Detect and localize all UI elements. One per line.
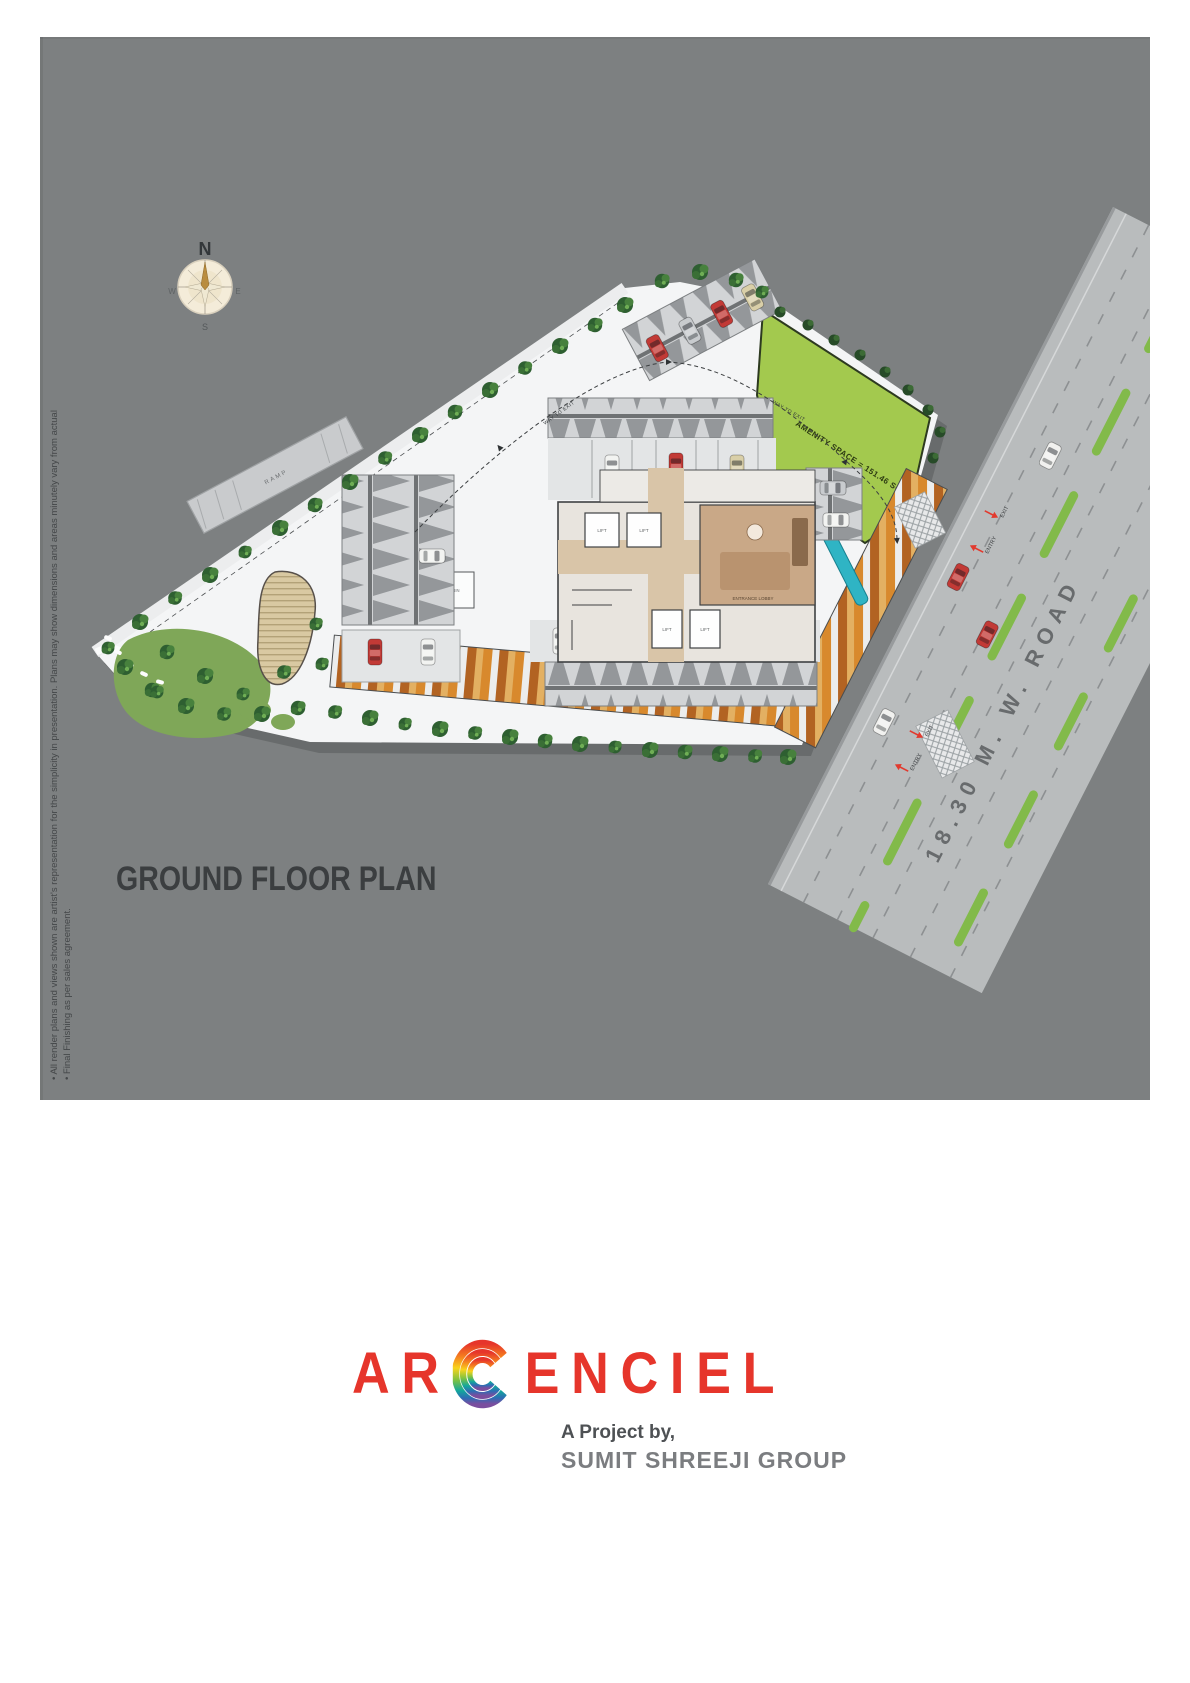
project-by-text: A Project by, — [561, 1422, 847, 1444]
lift-label: LIFT — [700, 627, 710, 632]
logo-wordmark: AR ENCIEL — [352, 1322, 856, 1426]
site-plan-drawing: 18.30 M. W. ROAD — [40, 37, 1150, 1100]
logo-text-enciel: ENCIEL — [525, 1322, 787, 1426]
developer-name: SUMIT SHREEJI GROUP — [561, 1447, 847, 1474]
compass-e: E — [235, 287, 240, 296]
rainbow-c-icon — [453, 1322, 518, 1426]
compass-n: N — [199, 239, 212, 259]
byline: A Project by, SUMIT SHREEJI GROUP — [561, 1422, 847, 1474]
disclaimer-line-1: • All render plans and views shown are a… — [48, 338, 61, 1080]
lift-label: LIFT — [597, 528, 607, 533]
page-title: GROUND FLOOR PLAN — [116, 860, 436, 899]
entrance-lobby-label: ENTRANCE LOBBY — [732, 596, 773, 601]
entrance-lobby: ENTRANCE LOBBY — [700, 505, 815, 605]
brand-block: AR ENCIEL A Project by, SUMIT SHREEJI G — [352, 1322, 912, 1492]
site: AMENITY SPACE = 151.46 SQ.MT. — [95, 259, 947, 756]
disclaimer-notes: • All render plans and views shown are a… — [48, 338, 74, 1080]
compass-w: W — [168, 287, 176, 296]
disclaimer-line-2: • Final Finishing as per sales agreement… — [61, 338, 74, 1080]
site-plan-panel: 18.30 M. W. ROAD — [40, 37, 1150, 1100]
brochure-page: 18.30 M. W. ROAD — [0, 0, 1190, 1683]
lift-label: LIFT — [662, 627, 672, 632]
compass: N E S W — [168, 239, 240, 332]
logo-text-ar: AR — [352, 1322, 451, 1426]
lift-label: LIFT — [639, 528, 649, 533]
compass-s: S — [202, 322, 208, 332]
